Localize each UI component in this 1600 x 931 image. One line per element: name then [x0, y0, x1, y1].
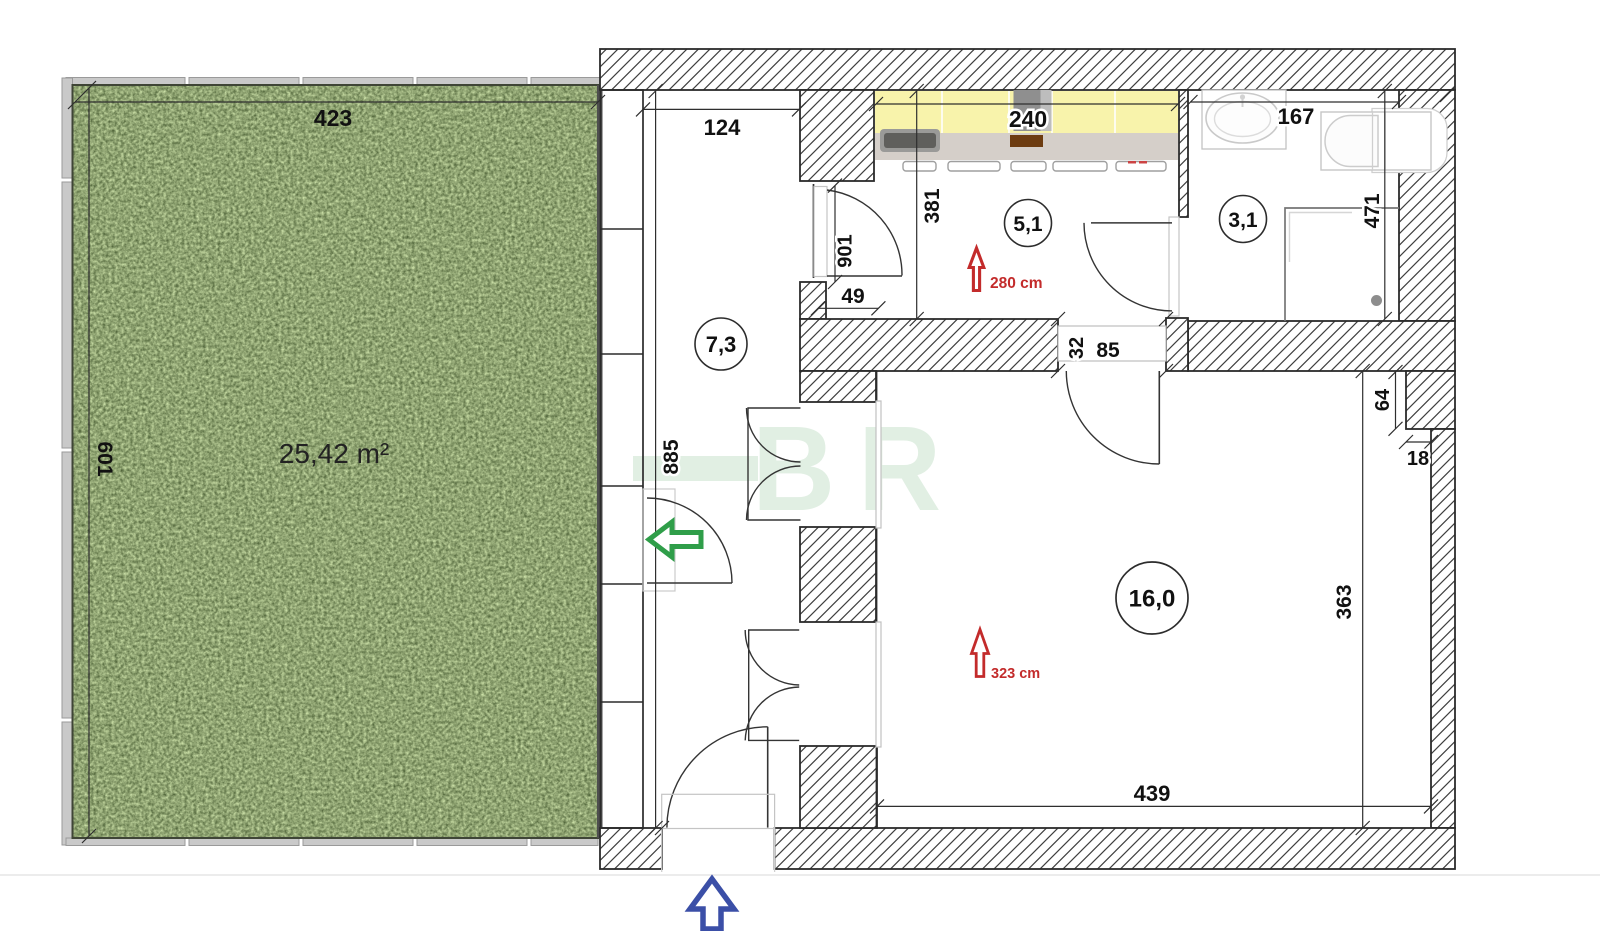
svg-text:49: 49	[841, 285, 864, 308]
svg-text:601: 601	[93, 441, 116, 476]
svg-text:5,1: 5,1	[1013, 213, 1043, 236]
svg-text:423: 423	[314, 105, 352, 131]
svg-text:64: 64	[1372, 388, 1394, 411]
svg-text:240: 240	[1009, 106, 1047, 132]
svg-text:381: 381	[921, 188, 944, 223]
svg-text:439: 439	[1134, 781, 1171, 806]
svg-text:7,3: 7,3	[706, 332, 737, 357]
svg-text:363: 363	[1333, 584, 1356, 619]
svg-text:18: 18	[1407, 448, 1429, 470]
svg-text:471: 471	[1361, 193, 1384, 228]
svg-text:16,0: 16,0	[1129, 586, 1176, 613]
svg-text:25,42 m²: 25,42 m²	[279, 438, 390, 469]
svg-text:901: 901	[835, 234, 857, 267]
svg-text:167: 167	[1278, 104, 1315, 129]
svg-text:124: 124	[704, 115, 741, 140]
svg-text:3,1: 3,1	[1228, 209, 1258, 232]
svg-text:323 cm: 323 cm	[991, 666, 1040, 682]
svg-text:32: 32	[1066, 337, 1088, 359]
svg-text:85: 85	[1096, 339, 1120, 362]
svg-text:885: 885	[660, 439, 683, 474]
svg-text:280 cm: 280 cm	[990, 275, 1043, 292]
